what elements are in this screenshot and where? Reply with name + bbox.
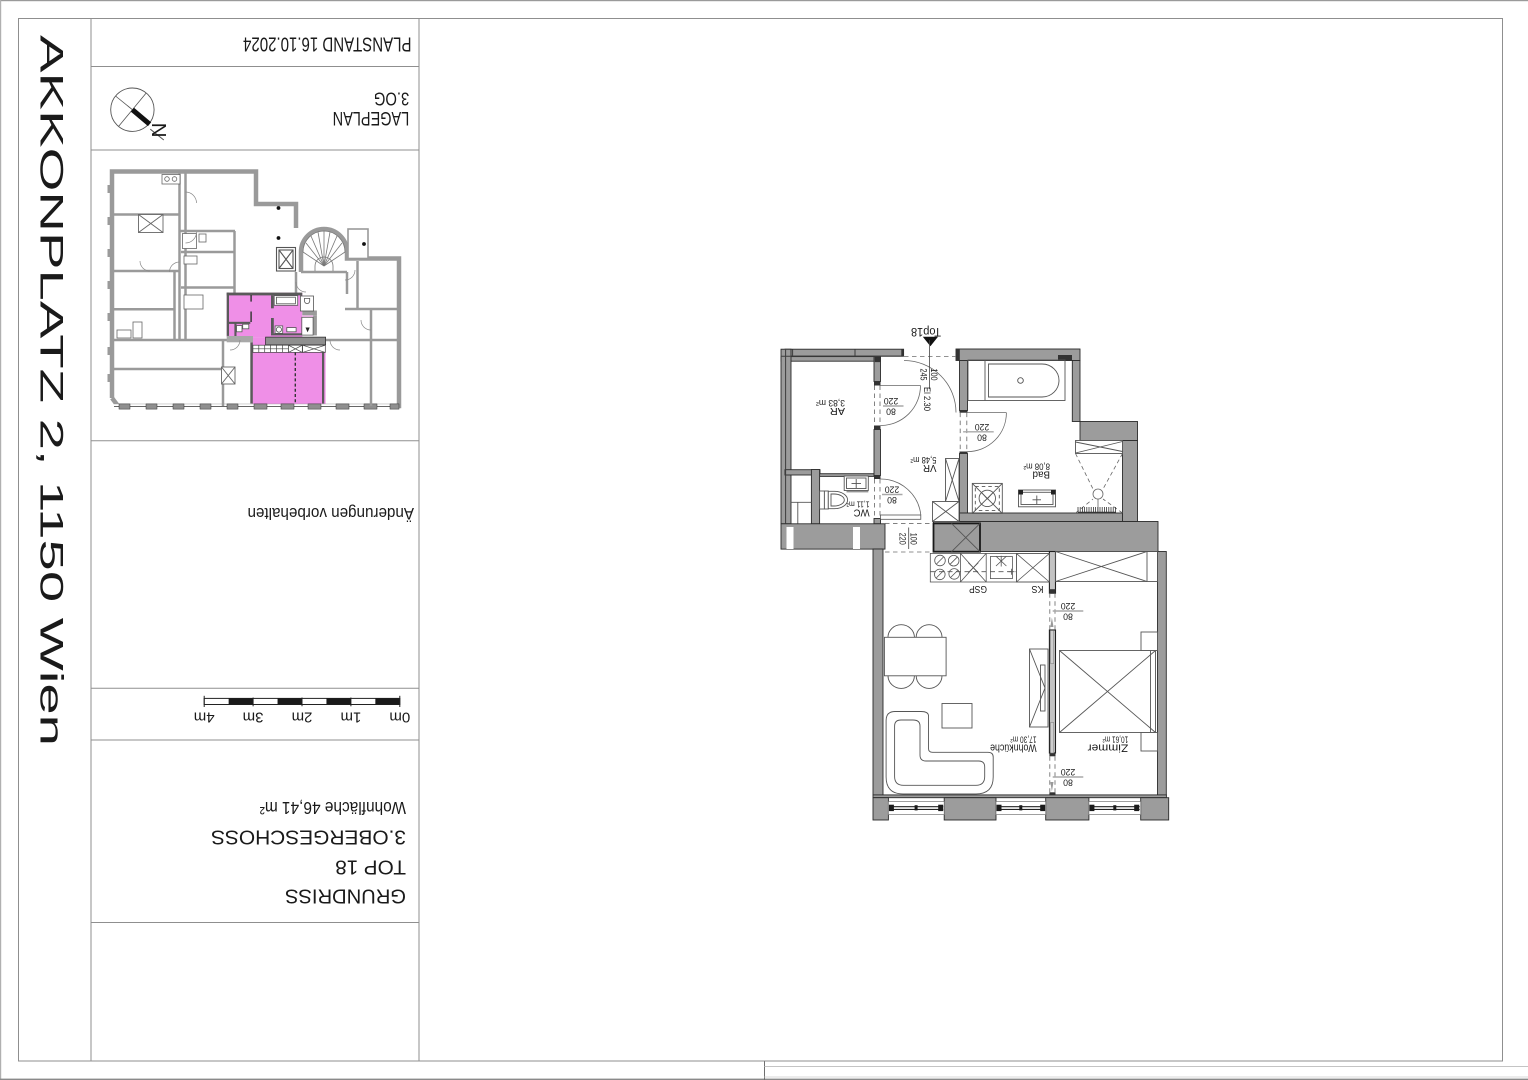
svg-text:100: 100 xyxy=(928,369,939,381)
svg-text:17,30 m²: 17,30 m² xyxy=(1010,734,1036,744)
svg-text:80: 80 xyxy=(887,495,897,505)
svg-text:8,08 m²: 8,08 m² xyxy=(1023,461,1050,471)
svg-text:1m: 1m xyxy=(340,709,361,726)
svg-text:Änderungen vorbehalten: Änderungen vorbehalten xyxy=(248,504,415,522)
svg-text:80: 80 xyxy=(886,407,896,417)
svg-text:AKKONPLATZ 2, 1150 Wien: AKKONPLATZ 2, 1150 Wien xyxy=(34,35,70,746)
svg-text:220: 220 xyxy=(975,422,990,432)
svg-text:10,61 m²: 10,61 m² xyxy=(1103,734,1129,744)
svg-text:220: 220 xyxy=(885,485,900,495)
svg-text:5,48 m²: 5,48 m² xyxy=(910,455,936,465)
svg-text:TOP 18: TOP 18 xyxy=(335,855,406,877)
svg-text:220: 220 xyxy=(884,396,899,406)
svg-text:80: 80 xyxy=(1063,778,1073,788)
svg-text:1,11 m²: 1,11 m² xyxy=(846,499,869,508)
svg-text:4m: 4m xyxy=(194,709,215,726)
svg-text:Wohnfläche 46,41 m²: Wohnfläche 46,41 m² xyxy=(260,798,406,818)
svg-text:3.OBERGESCHOSS: 3.OBERGESCHOSS xyxy=(211,826,406,848)
svg-text:Top18: Top18 xyxy=(911,325,941,337)
svg-text:220: 220 xyxy=(897,533,908,545)
svg-text:3m: 3m xyxy=(243,709,264,726)
svg-text:220: 220 xyxy=(1061,767,1076,777)
svg-text:GSP: GSP xyxy=(969,583,987,594)
svg-text:LAGEPLAN: LAGEPLAN xyxy=(333,107,410,129)
svg-text:80: 80 xyxy=(1063,612,1073,622)
svg-text:245: 245 xyxy=(917,369,928,381)
svg-text:El 2.30: El 2.30 xyxy=(922,387,932,411)
svg-text:3,83 m²: 3,83 m² xyxy=(816,398,845,408)
svg-text:KS: KS xyxy=(1031,583,1043,594)
svg-text:80: 80 xyxy=(977,432,987,442)
svg-text:GRUNDRISS: GRUNDRISS xyxy=(285,885,406,907)
svg-text:3.OG: 3.OG xyxy=(374,88,409,108)
svg-text:0m: 0m xyxy=(389,709,410,726)
svg-text:2m: 2m xyxy=(292,709,313,726)
svg-text:N: N xyxy=(147,123,170,138)
svg-text:100: 100 xyxy=(907,533,918,545)
svg-text:220: 220 xyxy=(1061,601,1076,611)
svg-text:PLANSTAND 16.10.2024: PLANSTAND 16.10.2024 xyxy=(243,33,412,55)
